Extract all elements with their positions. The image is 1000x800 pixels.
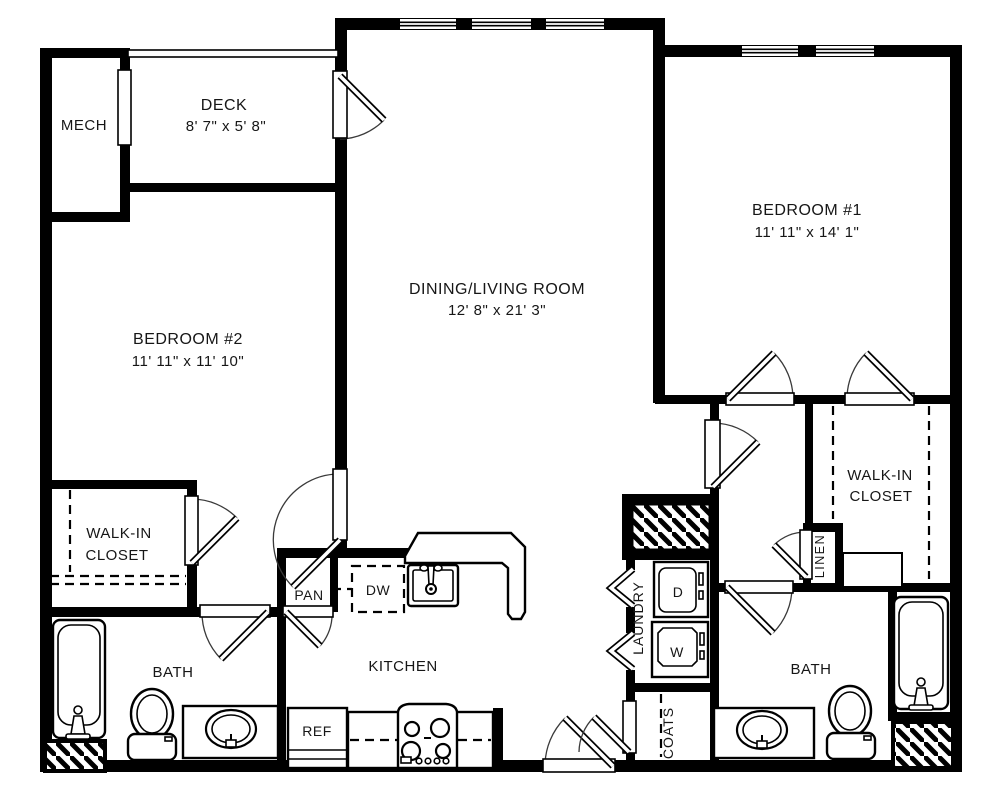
deck-dims: 8' 7" x 5' 8": [186, 118, 266, 135]
vanity-sink-left: [183, 706, 278, 758]
stove: [398, 704, 457, 768]
linen-door: [774, 530, 812, 579]
hallway-door: [705, 420, 758, 488]
walk-in-closet-left-label-1: WALK-IN: [86, 525, 151, 542]
dryer-label: D: [673, 584, 684, 600]
linen-label: LINEN: [813, 534, 827, 578]
bottom-right-chase-hatch: [893, 722, 953, 768]
bottom-left-chase-hatch: [45, 741, 105, 771]
bedroom1-label: BEDROOM #1: [752, 202, 862, 219]
closet-left-door: [185, 496, 237, 565]
walk-in-closet-right-label-1: WALK-IN: [847, 467, 912, 484]
kitchen-label: KITCHEN: [368, 658, 437, 675]
bath-right-label: BATH: [791, 661, 832, 678]
bath-left-door: [200, 605, 270, 659]
bedroom2-dims: 11' 11" x 11' 10": [132, 353, 244, 370]
coats-label: COATS: [660, 707, 676, 759]
windows: [128, 19, 877, 57]
mech-door-opening: [118, 70, 131, 145]
bedroom1-door: [726, 353, 794, 405]
dishwasher-label: DW: [366, 582, 391, 598]
living-room-dims: 12' 8" x 21' 3": [448, 302, 546, 319]
closet-right-door: [845, 353, 914, 405]
toilet-right: [827, 686, 875, 759]
closet-shelf: [843, 553, 902, 587]
living-room-window: [397, 19, 607, 29]
floor-plan-canvas: MECH DECK 8' 7" x 5' 8" DINING/LIVING RO…: [0, 0, 1000, 800]
walk-in-closet-left-label-2: CLOSET: [85, 547, 148, 564]
kitchen-sink: [408, 565, 458, 606]
washer-label: W: [670, 644, 684, 660]
bath-right-door: [725, 581, 793, 633]
pantry-label: PAN: [294, 587, 323, 603]
deck-label: DECK: [201, 97, 247, 114]
bedroom2-label: BEDROOM #2: [133, 331, 243, 348]
deck-railing: [128, 50, 338, 57]
walls: [40, 18, 962, 772]
mechanical-chase-hatch: [632, 504, 710, 550]
deck-door: [333, 71, 384, 139]
walk-in-closet-right-label-2: CLOSET: [849, 488, 912, 505]
laundry-label: LAUNDRY: [630, 581, 646, 655]
floor-plan: MECH DECK 8' 7" x 5' 8" DINING/LIVING RO…: [0, 0, 1000, 800]
refrigerator-label: REF: [302, 723, 332, 739]
pantry-door: [283, 606, 333, 646]
mech-label: MECH: [61, 117, 107, 134]
closet-rods: [50, 406, 929, 757]
room-labels: MECH DECK 8' 7" x 5' 8" DINING/LIVING RO…: [61, 97, 913, 759]
bath-left-fixtures: [53, 620, 278, 760]
bathtub-right: [894, 597, 948, 710]
bathtub-left: [53, 620, 105, 739]
bath-left-label: BATH: [153, 664, 194, 681]
living-room-label: DINING/LIVING ROOM: [409, 281, 585, 298]
laundry-appliances: [611, 562, 708, 677]
vanity-sink-right: [714, 708, 814, 758]
toilet-left: [128, 689, 176, 760]
bedroom1-dims: 11' 11" x 14' 1": [755, 224, 860, 241]
